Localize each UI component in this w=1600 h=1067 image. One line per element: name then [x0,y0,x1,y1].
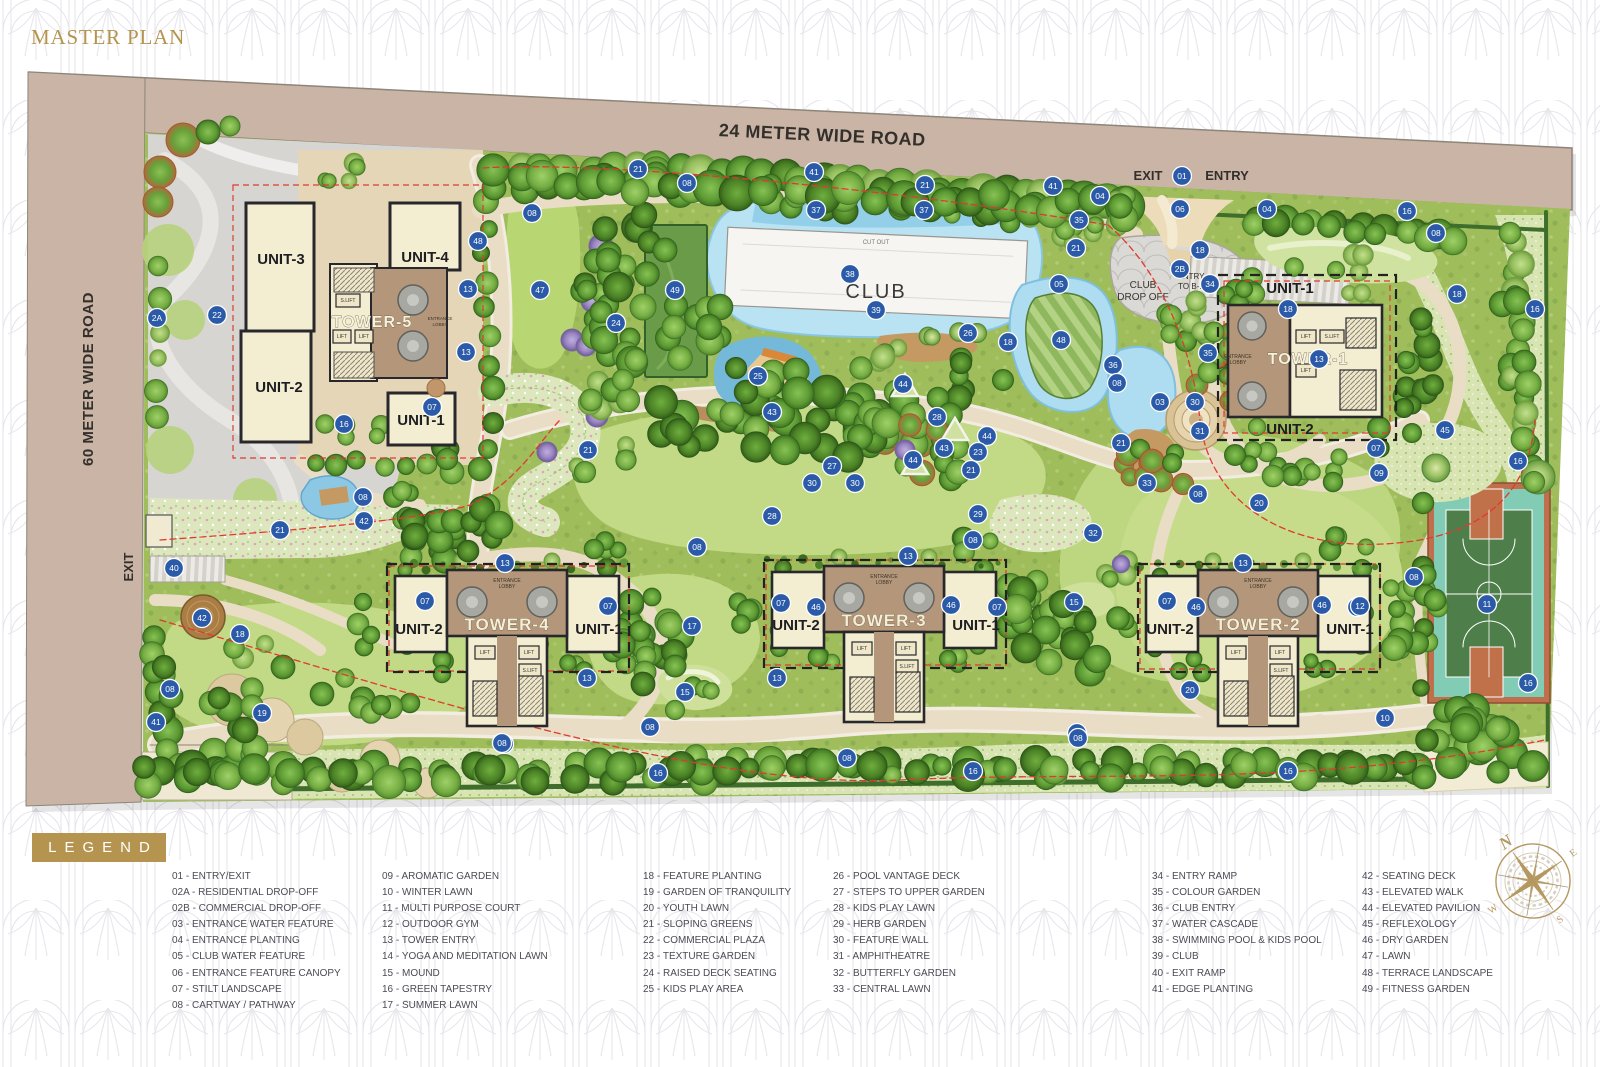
svg-text:04: 04 [1095,191,1105,201]
svg-text:27: 27 [827,461,837,471]
svg-text:13: 13 [582,673,592,683]
svg-text:28: 28 [767,511,777,521]
svg-text:08: 08 [1431,228,1441,238]
svg-text:37: 37 [811,205,821,215]
svg-text:25: 25 [753,371,763,381]
svg-text:17: 17 [687,621,697,631]
svg-text:60 METER WIDE ROAD: 60 METER WIDE ROAD [80,292,97,466]
svg-text:16: 16 [1523,678,1533,688]
svg-text:W: W [1486,902,1501,917]
svg-text:20: 20 [1185,685,1195,695]
svg-text:21: 21 [633,164,643,174]
svg-text:03: 03 [1155,397,1165,407]
svg-text:16: 16 [1283,766,1293,776]
svg-text:22: 22 [212,310,222,320]
svg-text:08: 08 [842,753,852,763]
svg-text:13: 13 [500,558,510,568]
svg-text:08: 08 [1409,572,1419,582]
svg-text:18: 18 [1283,304,1293,314]
svg-text:33: 33 [1142,478,1152,488]
svg-text:16: 16 [1513,456,1523,466]
svg-text:08: 08 [497,738,507,748]
svg-text:TOWER-1: TOWER-1 [1268,351,1348,368]
svg-text:08: 08 [692,542,702,552]
svg-text:LIFT: LIFT [1301,334,1311,340]
svg-text:01: 01 [1177,171,1187,181]
svg-text:16: 16 [1402,206,1412,216]
svg-text:TOWER-3: TOWER-3 [841,611,926,630]
svg-text:CLUB: CLUB [1130,280,1157,291]
svg-text:46: 46 [1317,600,1327,610]
svg-text:08: 08 [1073,733,1083,743]
svg-text:LOBBY: LOBBY [1250,584,1267,590]
svg-text:UNIT-1: UNIT-1 [1326,621,1374,638]
svg-text:ENTRANCE: ENTRANCE [428,316,453,321]
svg-text:37: 37 [919,205,929,215]
svg-text:46: 46 [946,600,956,610]
svg-text:30: 30 [850,478,860,488]
svg-text:S: S [1555,914,1566,926]
svg-text:UNIT-3: UNIT-3 [257,251,305,268]
svg-text:21: 21 [275,525,285,535]
svg-text:LOBBY: LOBBY [1230,360,1247,366]
svg-text:CUT OUT: CUT OUT [863,240,890,246]
svg-text:LIFT: LIFT [359,334,369,340]
svg-text:07: 07 [603,601,613,611]
svg-text:TOWER-4: TOWER-4 [464,615,549,634]
svg-text:LOBBY: LOBBY [499,584,516,590]
svg-text:EXIT: EXIT [1134,168,1163,183]
svg-text:46: 46 [1191,602,1201,612]
svg-text:08: 08 [682,178,692,188]
svg-text:32: 32 [1088,528,1098,538]
svg-text:S.LIFT: S.LIFT [340,298,355,304]
svg-text:UNIT-2: UNIT-2 [1266,421,1314,438]
svg-text:LOBBY: LOBBY [876,580,893,586]
svg-text:18: 18 [1003,337,1013,347]
svg-text:UNIT-1: UNIT-1 [1266,280,1314,297]
svg-text:09: 09 [1374,468,1384,478]
svg-text:16: 16 [1530,304,1540,314]
svg-text:UNIT-4: UNIT-4 [401,249,449,266]
svg-text:08: 08 [358,492,368,502]
svg-text:08: 08 [1193,489,1203,499]
svg-text:43: 43 [767,407,777,417]
svg-text:07: 07 [992,602,1002,612]
svg-text:10: 10 [1380,713,1390,723]
svg-text:08: 08 [968,535,978,545]
svg-text:07: 07 [776,598,786,608]
svg-text:13: 13 [903,551,913,561]
svg-text:16: 16 [653,768,663,778]
svg-text:UNIT-2: UNIT-2 [255,379,303,396]
svg-text:ENTRY: ENTRY [1205,168,1249,183]
svg-text:LIFT: LIFT [337,334,347,340]
svg-text:DROP OFF: DROP OFF [1117,292,1168,303]
svg-text:EXIT: EXIT [121,552,136,581]
svg-text:41: 41 [809,167,819,177]
svg-text:35: 35 [1074,215,1084,225]
svg-text:UNIT-2: UNIT-2 [772,617,820,634]
svg-text:30: 30 [807,478,817,488]
svg-text:S.LIFT: S.LIFT [522,668,537,674]
svg-text:23: 23 [973,447,983,457]
svg-text:18: 18 [235,629,245,639]
svg-text:42: 42 [359,516,369,526]
svg-text:LIFT: LIFT [1231,650,1241,656]
svg-text:08: 08 [1112,378,1122,388]
svg-text:13: 13 [1314,354,1324,364]
svg-text:LIFT: LIFT [901,646,911,652]
svg-text:31: 31 [1195,426,1205,436]
svg-text:45: 45 [1440,425,1450,435]
svg-text:S.LIFT: S.LIFT [1324,334,1339,340]
svg-text:44: 44 [908,455,918,465]
svg-text:TOWER-5: TOWER-5 [332,314,412,331]
svg-text:S.LIFT: S.LIFT [899,664,914,670]
svg-text:42: 42 [197,613,207,623]
svg-text:30: 30 [1190,397,1200,407]
svg-text:E: E [1568,847,1579,860]
svg-text:06: 06 [1175,204,1185,214]
svg-text:41: 41 [1048,181,1058,191]
svg-text:16: 16 [968,766,978,776]
svg-text:20: 20 [1254,498,1264,508]
svg-text:47: 47 [535,285,545,295]
svg-text:41: 41 [151,717,161,727]
svg-text:LIFT: LIFT [857,646,867,652]
svg-text:UNIT-1: UNIT-1 [952,617,1000,634]
svg-text:N: N [1494,830,1516,854]
svg-text:04: 04 [1262,204,1272,214]
svg-text:2B: 2B [1175,264,1186,274]
svg-text:UNIT-2: UNIT-2 [395,621,443,638]
svg-text:15: 15 [680,687,690,697]
svg-text:LIFT: LIFT [480,650,490,656]
svg-text:48: 48 [1056,335,1066,345]
svg-text:LIFT: LIFT [524,650,534,656]
svg-text:CLUB: CLUB [845,281,906,303]
svg-text:S.LIFT: S.LIFT [1273,668,1288,674]
svg-text:49: 49 [670,285,680,295]
svg-text:07: 07 [1162,596,1172,606]
svg-text:21: 21 [583,445,593,455]
svg-text:08: 08 [645,722,655,732]
svg-text:35: 35 [1203,348,1213,358]
svg-text:2A: 2A [152,313,163,323]
svg-text:UNIT-1: UNIT-1 [575,621,623,638]
svg-text:21: 21 [920,180,930,190]
svg-text:46: 46 [811,602,821,612]
svg-text:18: 18 [1452,289,1462,299]
svg-text:MASTER PLAN: MASTER PLAN [31,25,185,49]
svg-text:15: 15 [1069,597,1079,607]
svg-text:18: 18 [1195,245,1205,255]
svg-text:24: 24 [611,318,621,328]
svg-text:13: 13 [463,284,473,294]
svg-text:07: 07 [420,596,430,606]
svg-text:40: 40 [169,563,179,573]
svg-text:08: 08 [165,684,175,694]
svg-text:13: 13 [1238,558,1248,568]
svg-text:26: 26 [963,328,973,338]
svg-text:48: 48 [473,236,483,246]
svg-text:12: 12 [1355,601,1365,611]
svg-text:21: 21 [1071,243,1081,253]
svg-text:29: 29 [973,509,983,519]
svg-text:43: 43 [939,443,949,453]
svg-text:UNIT-2: UNIT-2 [1146,621,1194,638]
svg-text:07: 07 [427,402,437,412]
svg-text:19: 19 [257,708,267,718]
svg-text:28: 28 [932,412,942,422]
svg-text:07: 07 [1371,443,1381,453]
svg-text:34: 34 [1205,279,1215,289]
svg-text:LIFT: LIFT [1275,650,1285,656]
svg-text:38: 38 [845,269,855,279]
svg-text:LIFT: LIFT [1301,368,1311,374]
svg-text:13: 13 [772,673,782,683]
svg-text:05: 05 [1054,279,1064,289]
svg-text:39: 39 [871,305,881,315]
svg-text:13: 13 [461,347,471,357]
svg-text:21: 21 [1116,438,1126,448]
svg-text:44: 44 [982,431,992,441]
svg-text:11: 11 [1483,599,1492,609]
svg-text:16: 16 [339,419,349,429]
svg-text:LOBBY: LOBBY [432,322,447,327]
svg-text:21: 21 [966,465,976,475]
svg-text:TOWER-2: TOWER-2 [1215,615,1300,634]
svg-text:36: 36 [1108,360,1118,370]
svg-text:44: 44 [898,379,908,389]
svg-text:08: 08 [527,208,537,218]
